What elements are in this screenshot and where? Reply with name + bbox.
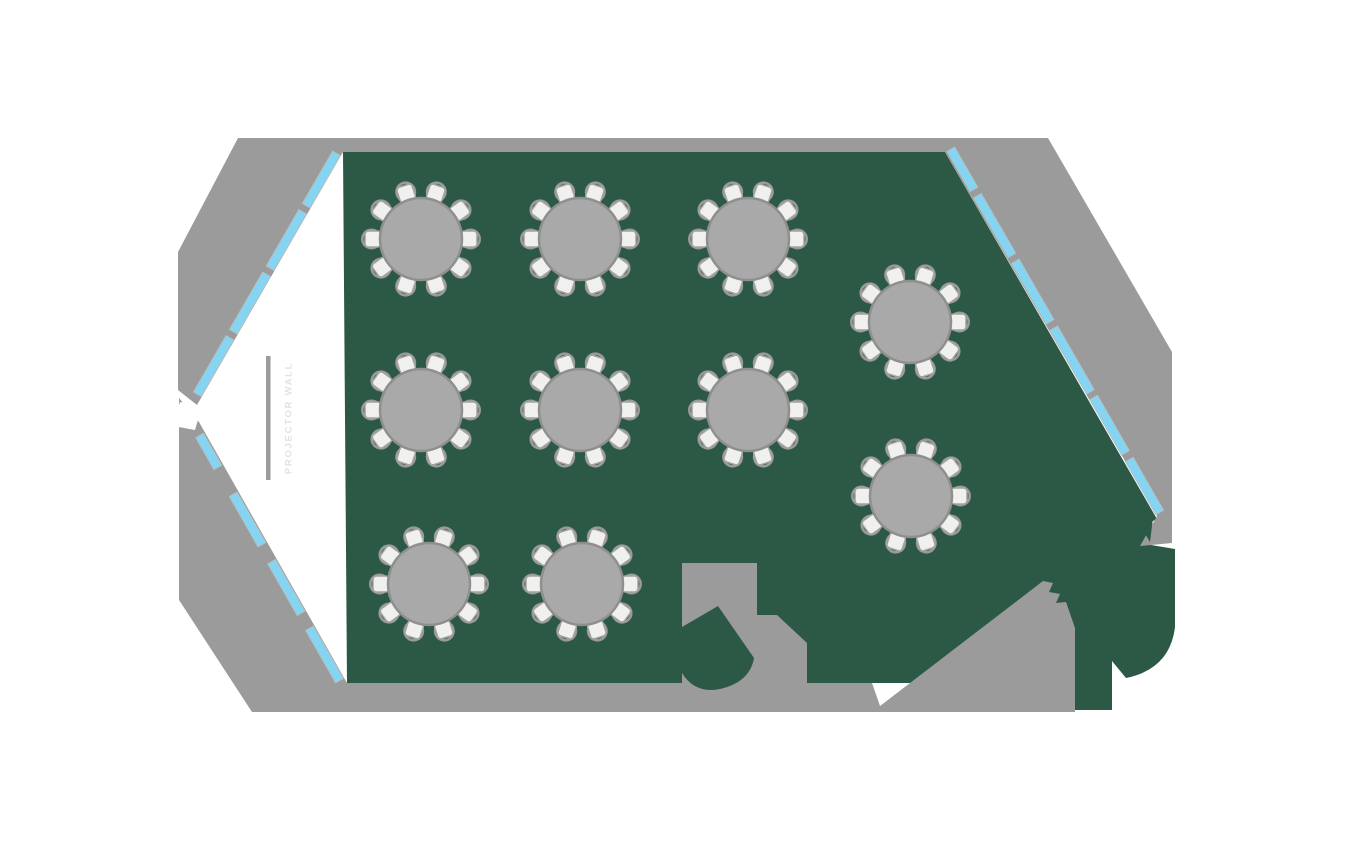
table-top — [869, 281, 951, 363]
table-top — [380, 198, 462, 280]
chair-seat — [524, 231, 540, 247]
chair — [689, 401, 708, 419]
chair — [461, 230, 480, 248]
chair-seat — [788, 231, 804, 247]
projector-wall-label: PROJECTOR WALL — [284, 362, 295, 474]
table-top — [541, 543, 623, 625]
chair — [620, 401, 639, 419]
chair-seat — [461, 402, 477, 418]
chair-seat — [620, 402, 636, 418]
chair-seat — [620, 231, 636, 247]
table-top — [539, 198, 621, 280]
chair — [851, 313, 870, 331]
chair — [523, 575, 542, 593]
chair-seat — [461, 231, 477, 247]
chair — [362, 401, 381, 419]
chair — [689, 230, 708, 248]
chair-seat — [365, 402, 381, 418]
chair-seat — [524, 402, 540, 418]
chair-seat — [788, 402, 804, 418]
chair-seat — [950, 314, 966, 330]
chair-seat — [692, 231, 708, 247]
chair-seat — [854, 314, 870, 330]
table-top — [388, 543, 470, 625]
chair — [362, 230, 381, 248]
chair-seat — [951, 488, 967, 504]
chair — [370, 575, 389, 593]
chair — [788, 401, 807, 419]
chair — [951, 487, 970, 505]
table-top — [707, 198, 789, 280]
chair — [461, 401, 480, 419]
chair-seat — [692, 402, 708, 418]
chair — [469, 575, 488, 593]
chair — [950, 313, 969, 331]
table-top — [539, 369, 621, 451]
floor-plan-svg: PROJECTOR WALL — [0, 0, 1350, 850]
chair — [620, 230, 639, 248]
projector-wall-bar — [266, 356, 271, 480]
table-top — [707, 369, 789, 451]
chair-seat — [526, 576, 542, 592]
chair-seat — [469, 576, 485, 592]
floor-plan-canvas: PROJECTOR WALL — [0, 0, 1350, 850]
chair — [521, 230, 540, 248]
chair — [788, 230, 807, 248]
chair — [852, 487, 871, 505]
chair — [521, 401, 540, 419]
table-top — [870, 455, 952, 537]
chair-seat — [622, 576, 638, 592]
chair — [622, 575, 641, 593]
chair-seat — [373, 576, 389, 592]
chair-seat — [365, 231, 381, 247]
chair-seat — [855, 488, 871, 504]
table-top — [380, 369, 462, 451]
